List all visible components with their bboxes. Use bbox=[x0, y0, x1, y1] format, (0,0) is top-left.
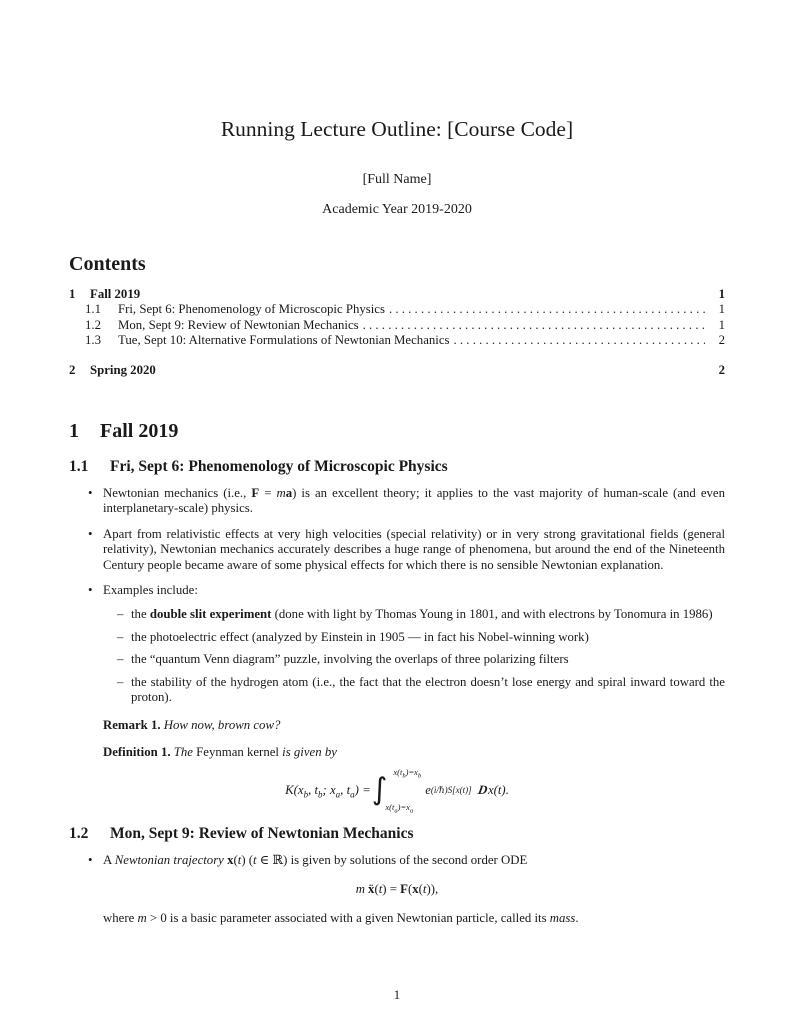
subbullet-photoelectric: – the photoelectric effect (analyzed by … bbox=[131, 630, 725, 645]
toc-entry-section-2: 2 Spring 2020 2 bbox=[69, 363, 725, 378]
feynman-kernel-equation: K(xb, tb; xa, ta) = ∫ x(tb)=xb x(ta)=xa … bbox=[69, 766, 725, 814]
remark-1: Remark 1. How now, brown cow? bbox=[103, 718, 725, 733]
dot-leader: . . . . . . . . . . . . . . . . . . . . … bbox=[389, 302, 705, 317]
contents-heading: Contents bbox=[69, 252, 725, 276]
page-content: Running Lecture Outline: [Course Code] [… bbox=[0, 116, 794, 926]
bullet-icon: • bbox=[88, 527, 92, 542]
subsection-title: Mon, Sept 9: Review of Newtonian Mechani… bbox=[110, 824, 414, 843]
toc-label: Spring 2020 bbox=[90, 363, 156, 378]
definition-label: Definition 1. bbox=[103, 745, 171, 759]
bullet-text: A Newtonian trajectory x(t) (t ∈ ℝ) is g… bbox=[103, 853, 725, 868]
bullet-text: Examples include: bbox=[103, 583, 725, 598]
subbullet-hydrogen-atom: – the stability of the hydrogen atom (i.… bbox=[131, 675, 725, 706]
upper-limit: x(tb)=xb bbox=[393, 768, 421, 777]
section-number: 1 bbox=[69, 418, 100, 444]
subsection-number: 1.1 bbox=[69, 457, 110, 476]
remark-text: How now, brown cow? bbox=[164, 718, 281, 732]
toc-number: 1.1 bbox=[85, 302, 118, 317]
bullet-newtonian-mechanics: • Newtonian mechanics (i.e., F = ma) is … bbox=[103, 486, 725, 517]
toc-entry-section-1-2: 1.2 Mon, Sept 9: Review of Newtonian Mec… bbox=[69, 318, 725, 333]
subsection-heading-1-2: 1.2 Mon, Sept 9: Review of Newtonian Mec… bbox=[69, 824, 725, 843]
subsection-heading-1-1: 1.1 Fri, Sept 6: Phenomenology of Micros… bbox=[69, 457, 725, 476]
page-number: 1 bbox=[0, 988, 794, 1003]
equation-lhs: K(xb, tb; xa, ta) = bbox=[285, 783, 371, 798]
author-name: [Full Name] bbox=[69, 171, 725, 188]
toc-number: 1 bbox=[69, 287, 90, 302]
toc-number: 1.2 bbox=[85, 318, 118, 333]
toc-page-number: 2 bbox=[709, 363, 725, 378]
definition-1: Definition 1. The Feynman kernel is give… bbox=[103, 745, 725, 760]
remark-label: Remark 1. bbox=[103, 718, 161, 732]
bullet-text: Apart from relativistic effects at very … bbox=[103, 527, 725, 573]
subbullet-text: the “quantum Venn diagram” puzzle, invol… bbox=[131, 652, 725, 667]
academic-year: Academic Year 2019-2020 bbox=[69, 201, 725, 218]
toc-page-number: 2 bbox=[709, 333, 725, 348]
bullet-relativistic-effects: • Apart from relativistic effects at ver… bbox=[103, 527, 725, 573]
toc-label: Fri, Sept 6: Phenomenology of Microscopi… bbox=[118, 302, 385, 317]
toc-page-number: 1 bbox=[709, 287, 725, 302]
integral-limits: x(tb)=xb x(ta)=xa bbox=[388, 768, 421, 812]
toc-label: Tue, Sept 10: Alternative Formulations o… bbox=[118, 333, 450, 348]
dot-leader: . . . . . . . . . . . . . . . . . . . . … bbox=[363, 318, 705, 333]
toc-entry-section-1-3: 1.3 Tue, Sept 10: Alternative Formulatio… bbox=[69, 333, 725, 348]
bullet-text: Newtonian mechanics (i.e., F = ma) is an… bbox=[103, 486, 725, 517]
subsection-number: 1.2 bbox=[69, 824, 110, 843]
mass-explanation: where m > 0 is a basic parameter associa… bbox=[103, 911, 725, 926]
subbullet-text: the photoelectric effect (analyzed by Ei… bbox=[131, 630, 725, 645]
bullet-examples-include: • Examples include: bbox=[103, 583, 725, 598]
toc-number: 1.3 bbox=[85, 333, 118, 348]
path-integral-measure: D bbox=[476, 783, 488, 798]
bullet-icon: • bbox=[88, 853, 92, 868]
toc-number: 2 bbox=[69, 363, 90, 378]
subbullet-text: the stability of the hydrogen atom (i.e.… bbox=[131, 675, 725, 706]
dash-icon: – bbox=[117, 607, 123, 622]
dash-icon: – bbox=[117, 652, 123, 667]
toc-label: Mon, Sept 9: Review of Newtonian Mechani… bbox=[118, 318, 359, 333]
measure-argument: x(t). bbox=[488, 783, 509, 798]
table-of-contents: 1 Fall 2019 1 1.1 Fri, Sept 6: Phenomeno… bbox=[69, 287, 725, 378]
toc-label: Fall 2019 bbox=[90, 287, 140, 302]
newton-second-law-equation: mẍ(t) = F(x(t)), bbox=[69, 879, 725, 899]
subbullet-text: the double slit experiment (done with li… bbox=[131, 607, 725, 622]
document-page: Running Lecture Outline: [Course Code] [… bbox=[0, 0, 794, 1028]
subbullet-venn-diagram: – the “quantum Venn diagram” puzzle, inv… bbox=[131, 652, 725, 667]
lower-limit: x(ta)=xa bbox=[385, 803, 421, 812]
toc-page-number: 1 bbox=[709, 302, 725, 317]
bullet-newtonian-trajectory: • A Newtonian trajectory x(t) (t ∈ ℝ) is… bbox=[103, 853, 725, 868]
subsection-title: Fri, Sept 6: Phenomenology of Microscopi… bbox=[110, 457, 448, 476]
subbullet-double-slit: – the double slit experiment (done with … bbox=[131, 607, 725, 622]
bullet-icon: • bbox=[88, 486, 92, 501]
document-title: Running Lecture Outline: [Course Code] bbox=[69, 116, 725, 142]
section-heading-fall-2019: 1 Fall 2019 bbox=[69, 418, 725, 444]
toc-entry-section-1-1: 1.1 Fri, Sept 6: Phenomenology of Micros… bbox=[69, 302, 725, 317]
toc-page-number: 1 bbox=[709, 318, 725, 333]
dot-leader: . . . . . . . . . . . . . . . . . . . . … bbox=[454, 333, 706, 348]
bullet-icon: • bbox=[88, 583, 92, 598]
section-title: Fall 2019 bbox=[100, 418, 178, 444]
dash-icon: – bbox=[117, 630, 123, 645]
dash-icon: – bbox=[117, 675, 123, 690]
integral-sign: ∫ bbox=[372, 775, 388, 805]
toc-entry-section-1: 1 Fall 2019 1 bbox=[69, 287, 725, 302]
